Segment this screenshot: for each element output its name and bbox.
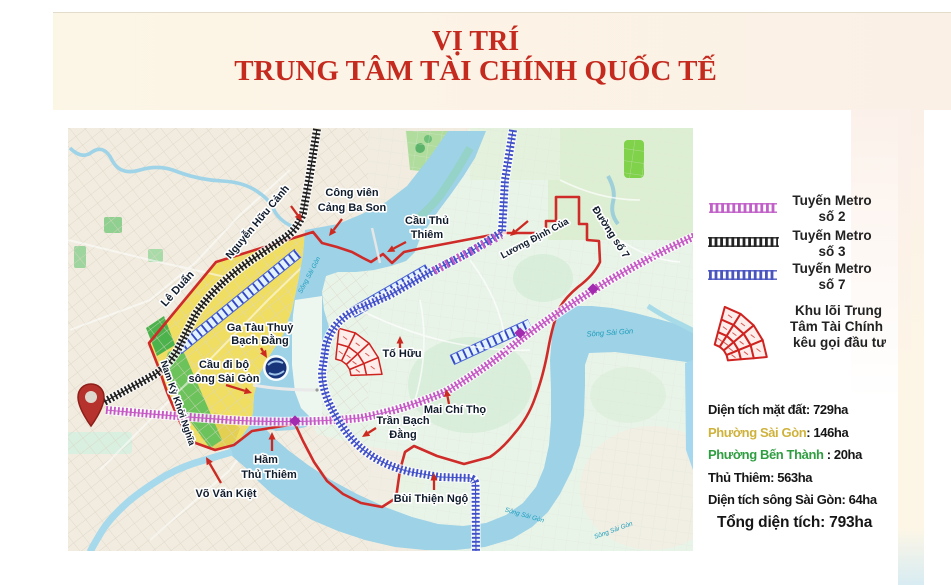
svg-text:Bạch Đằng: Bạch Đằng bbox=[231, 334, 288, 347]
svg-text:Tâm Tài Chính: Tâm Tài Chính bbox=[790, 319, 883, 334]
svg-text:Tố Hữu: Tố Hữu bbox=[382, 348, 421, 360]
svg-text:Ga Tàu Thuỷ: Ga Tàu Thuỷ bbox=[227, 322, 295, 334]
svg-text:Đằng: Đằng bbox=[389, 428, 417, 441]
svg-text:Tuyến Metro: Tuyến Metro bbox=[792, 261, 871, 276]
svg-text:Trần Bạch: Trần Bạch bbox=[376, 415, 429, 427]
svg-text:Bùi Thiện Ngộ: Bùi Thiện Ngộ bbox=[394, 493, 469, 505]
svg-text:Tuyến Metro: Tuyến Metro bbox=[792, 228, 871, 243]
svg-text:Tuyến Metro: Tuyến Metro bbox=[792, 193, 871, 208]
svg-text:Võ Văn Kiệt: Võ Văn Kiệt bbox=[195, 488, 256, 500]
svg-text:sông Sài Gòn: sông Sài Gòn bbox=[189, 373, 260, 385]
svg-text:Cầu Thủ: Cầu Thủ bbox=[405, 215, 449, 227]
svg-text:kêu gọi đầu tư: kêu gọi đầu tư bbox=[793, 335, 886, 350]
svg-text:Cảng Ba Son: Cảng Ba Son bbox=[318, 202, 387, 214]
svg-text:Cầu đi bộ: Cầu đi bộ bbox=[199, 359, 249, 371]
svg-text:Thủ Thiêm: Thủ Thiêm bbox=[241, 469, 297, 481]
svg-text:Thiêm: Thiêm bbox=[411, 229, 444, 241]
svg-text:số 7: số 7 bbox=[818, 277, 845, 292]
svg-text:Công viên: Công viên bbox=[325, 187, 378, 199]
svg-text:số 3: số 3 bbox=[818, 244, 846, 259]
svg-text:Khu lõi Trung: Khu lõi Trung bbox=[795, 303, 882, 318]
svg-text:Hầm: Hầm bbox=[254, 454, 278, 466]
svg-text:số 2: số 2 bbox=[818, 209, 845, 224]
svg-text:Mai Chí Thọ: Mai Chí Thọ bbox=[424, 404, 487, 416]
